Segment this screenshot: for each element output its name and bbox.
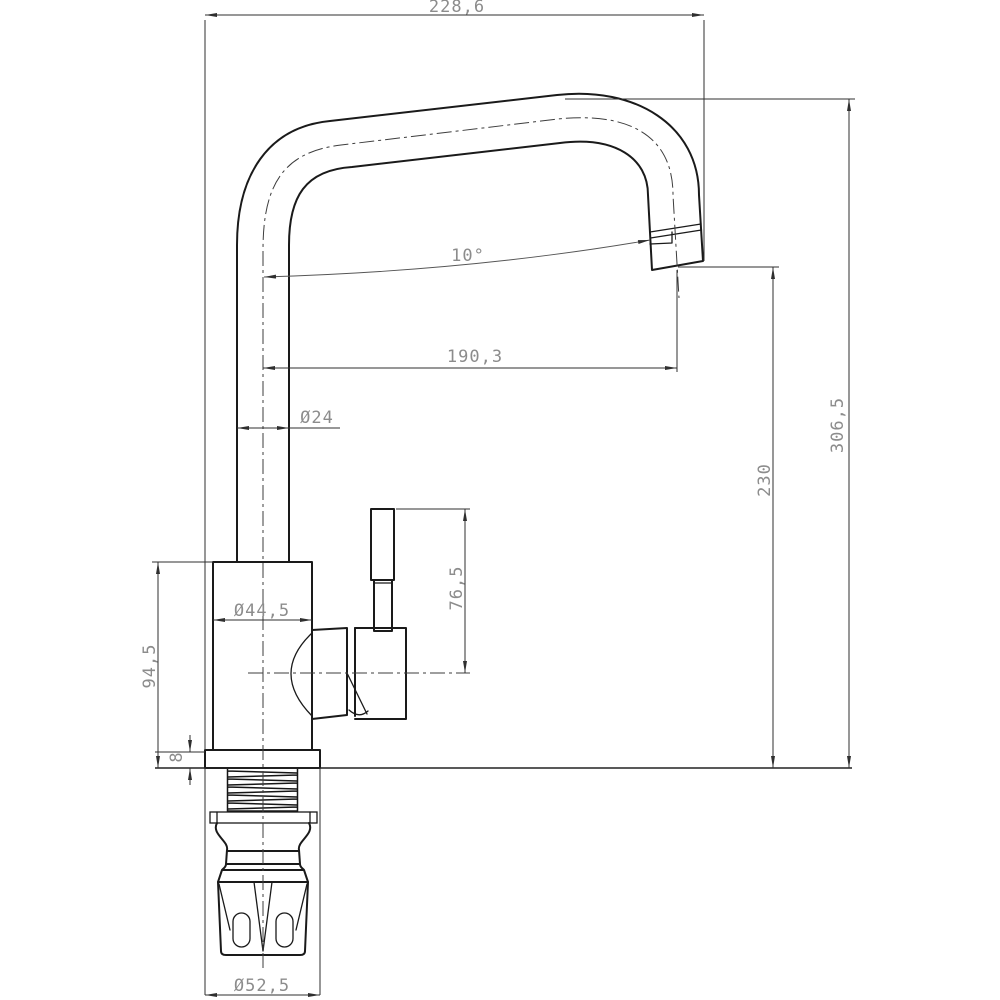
- handle-outline: [291, 509, 406, 719]
- dimension-body-diameter: Ø44,5: [213, 601, 312, 621]
- dimension-overall-width: 228,6: [205, 0, 704, 750]
- dimension-handle-height: 76,5: [396, 509, 470, 673]
- dim-overall-width-label: 228,6: [429, 0, 485, 17]
- dim-body-height-label: 94,5: [140, 644, 160, 689]
- dimension-outlet-height: 230: [678, 267, 779, 768]
- dimension-body-height: 94,5: [140, 562, 213, 768]
- dim-flange-diameter-label: Ø52,5: [234, 976, 290, 996]
- dim-outlet-height-label: 230: [755, 463, 775, 497]
- drawing-canvas: 228,6 10° 190,3 Ø24 306,5 230 76,5 Ø44,5…: [0, 0, 1000, 1000]
- dim-outlet-reach-label: 190,3: [447, 347, 503, 367]
- dimension-spout-angle: 10°: [264, 240, 650, 277]
- lever-grip: [371, 509, 394, 580]
- joint-detail: [347, 673, 368, 715]
- dimension-flange-thickness: 8: [155, 735, 205, 785]
- dim-body-diameter-label: Ø44,5: [234, 601, 290, 621]
- dim-flange-thickness-label: 8: [167, 751, 187, 762]
- dim-spout-angle-label: 10°: [451, 246, 485, 266]
- dimension-overall-height: 306,5: [565, 99, 855, 768]
- dim-overall-height-label: 306,5: [828, 397, 848, 453]
- lever-stem: [374, 580, 392, 631]
- dim-spout-diameter-label: Ø24: [300, 408, 334, 428]
- dimension-outlet-reach: 190,3: [263, 270, 677, 372]
- spout-outline: [237, 94, 703, 562]
- nut-hole-right: [276, 913, 293, 947]
- body-intersection-curve: [291, 633, 312, 716]
- faucet-technical-drawing: 228,6 10° 190,3 Ø24 306,5 230 76,5 Ø44,5…: [0, 0, 1000, 1000]
- mounting-nut: [218, 882, 308, 955]
- nut-hole-left: [233, 913, 250, 947]
- dim-handle-height-label: 76,5: [447, 566, 467, 611]
